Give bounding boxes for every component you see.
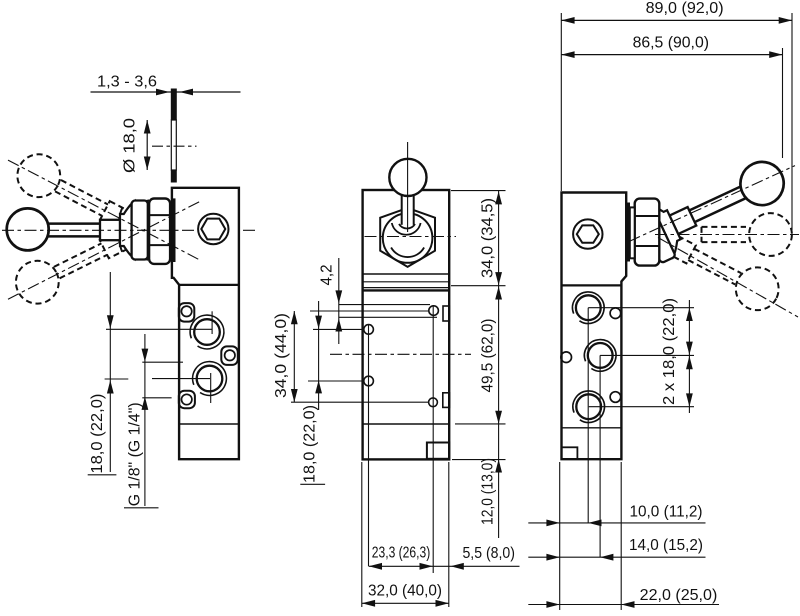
svg-text:32,0 (40,0): 32,0 (40,0) — [368, 583, 442, 600]
svg-text:34,0 (44,0): 34,0 (44,0) — [273, 313, 290, 398]
svg-text:89,0 (92,0): 89,0 (92,0) — [646, 0, 724, 17]
svg-text:5,5 (8,0): 5,5 (8,0) — [462, 545, 515, 562]
svg-text:2 x 18,0 (22,0): 2 x 18,0 (22,0) — [661, 298, 678, 405]
svg-text:12,0 (13,0): 12,0 (13,0) — [480, 458, 497, 525]
svg-text:4,2: 4,2 — [319, 265, 336, 286]
svg-text:18,0 (22,0): 18,0 (22,0) — [89, 394, 106, 474]
svg-text:14,0 (15,2): 14,0 (15,2) — [629, 537, 703, 554]
svg-text:86,5 (90,0): 86,5 (90,0) — [633, 34, 709, 51]
svg-text:49,5 (62,0): 49,5 (62,0) — [480, 319, 497, 393]
svg-text:23,3 (26,3): 23,3 (26,3) — [372, 545, 431, 562]
svg-text:34,0 (34,5): 34,0 (34,5) — [480, 198, 497, 278]
svg-text:Ø 18,0: Ø 18,0 — [122, 118, 139, 173]
svg-text:G 1/8" (G 1/4"): G 1/8" (G 1/4") — [127, 402, 144, 506]
svg-text:1,3 - 3,6: 1,3 - 3,6 — [97, 74, 157, 91]
svg-text:10,0 (11,2): 10,0 (11,2) — [630, 503, 703, 520]
svg-text:22,0 (25,0): 22,0 (25,0) — [640, 587, 718, 604]
svg-text:18,0 (22,0): 18,0 (22,0) — [302, 405, 319, 483]
